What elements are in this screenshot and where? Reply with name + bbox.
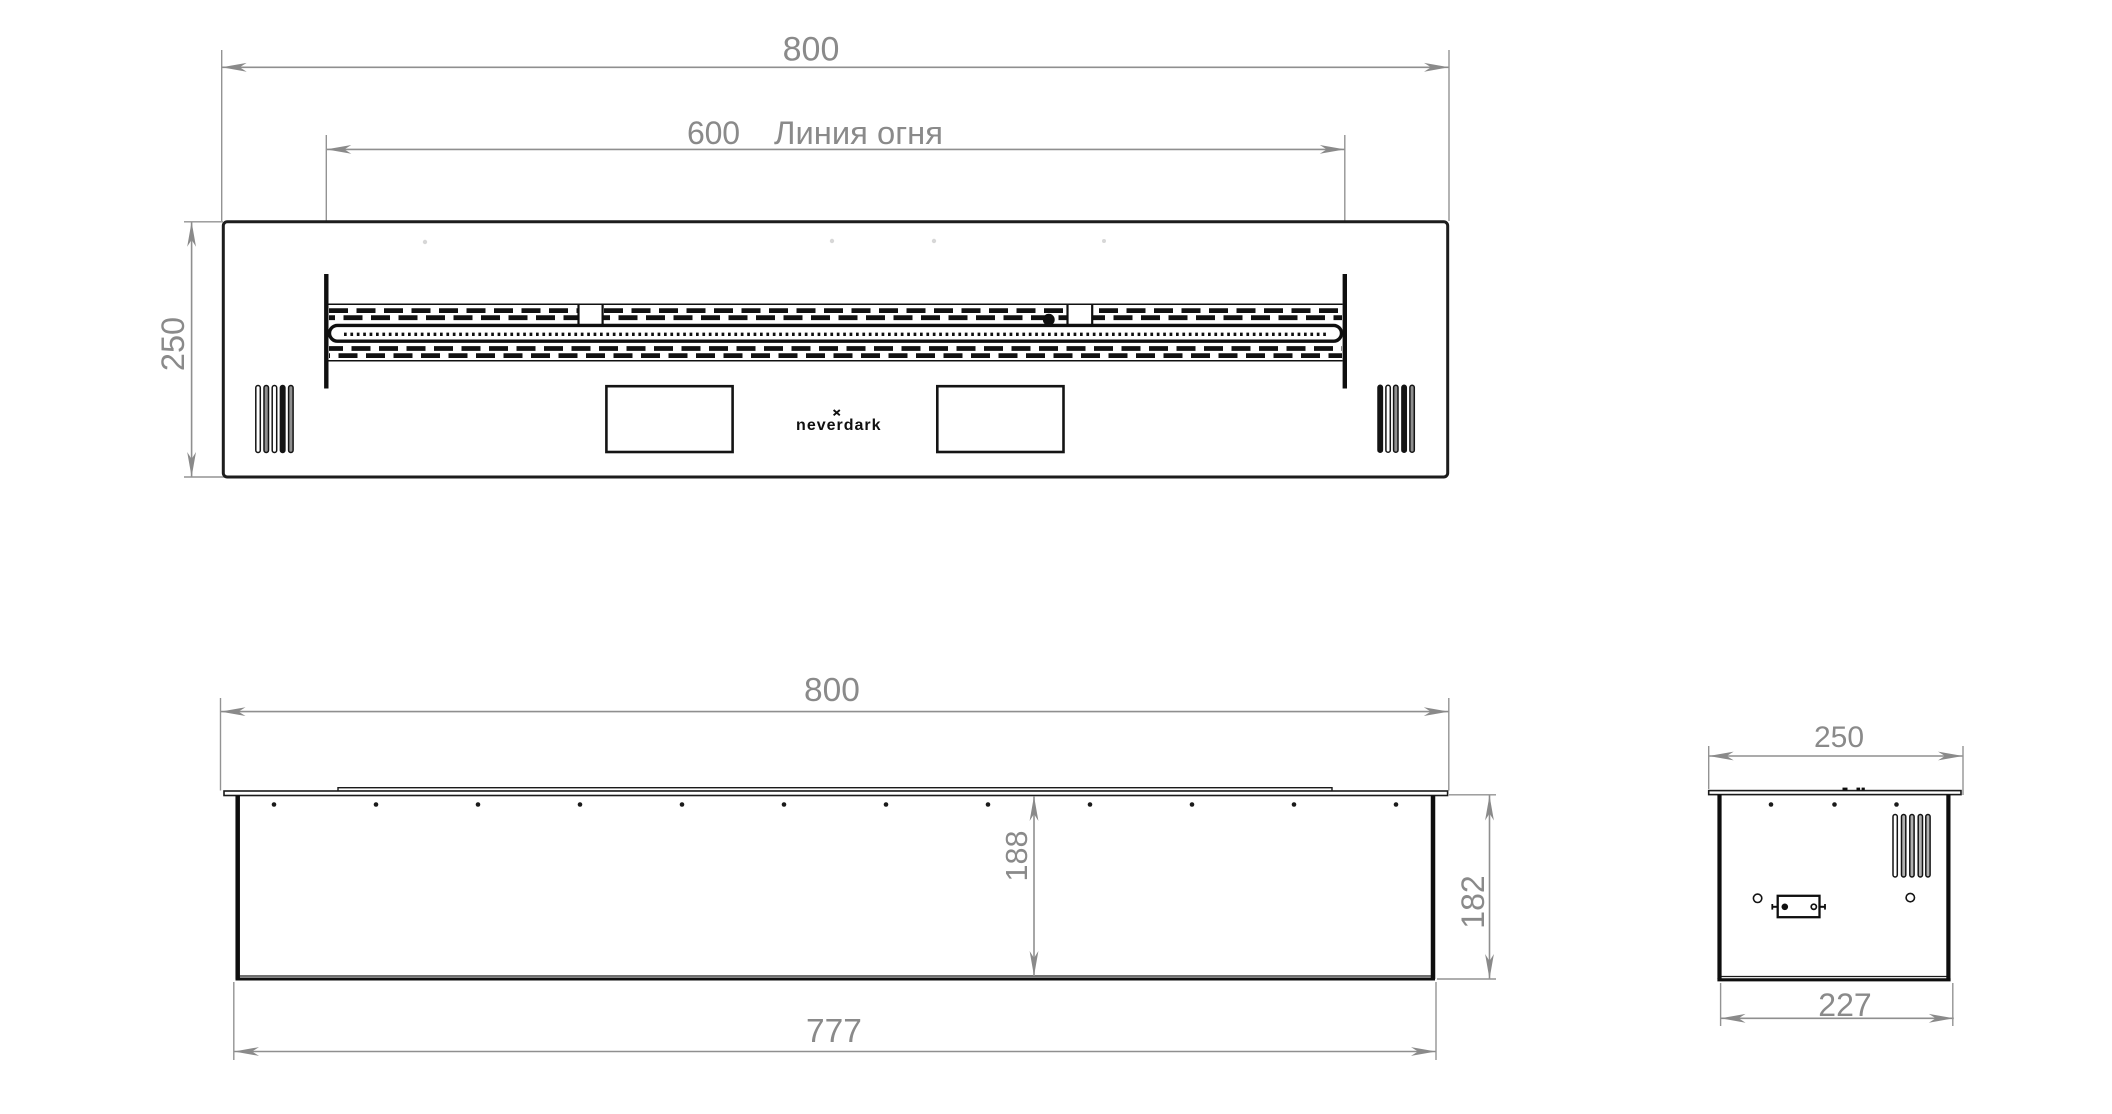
svg-text:777: 777 (806, 1013, 862, 1050)
svg-text:182: 182 (1455, 875, 1491, 928)
svg-text:800: 800 (783, 31, 840, 69)
svg-text:250: 250 (155, 317, 191, 371)
svg-text:Линия огня: Линия огня (774, 115, 943, 151)
svg-text:800: 800 (804, 672, 860, 709)
svg-text:188: 188 (1000, 831, 1034, 882)
svg-text:250: 250 (1814, 721, 1864, 754)
svg-text:600: 600 (687, 115, 740, 151)
svg-text:neverdark: neverdark (796, 417, 882, 434)
